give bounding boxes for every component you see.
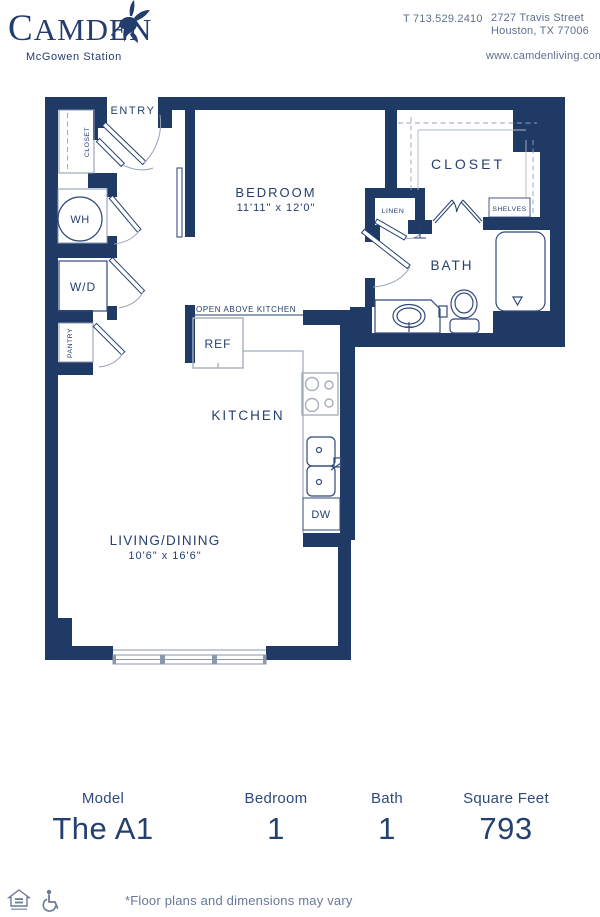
toilet: [450, 290, 479, 333]
pantry-box: [59, 323, 93, 362]
walkin-closet-label: CLOSET: [431, 156, 505, 172]
summary-model: Model The A1: [28, 790, 178, 847]
bath-label: BATH: [430, 258, 473, 273]
kitchen-sink: [307, 437, 341, 496]
living-dining-label: LIVING/DINING: [110, 533, 221, 548]
refrigerator-label: REF: [205, 337, 232, 351]
entry-closet-label: CLOSET: [84, 127, 91, 157]
footer-icons: [7, 889, 62, 912]
pantry-label: PANTRY: [67, 328, 74, 358]
living-window: [113, 650, 266, 664]
model-value: The A1: [28, 811, 178, 847]
kitchen-label: KITCHEN: [211, 408, 284, 423]
sqft-value: 793: [431, 811, 581, 847]
walls: [45, 97, 565, 660]
floorplan-drawing: ENTRY CLOSET WH W/D PANTRY BEDROOM 11'11…: [0, 0, 600, 700]
equal-housing-icon: [7, 889, 31, 912]
disclaimer-text: *Floor plans and dimensions may vary: [125, 893, 353, 908]
sqft-label: Square Feet: [431, 790, 581, 807]
vanity-sink: [375, 300, 447, 333]
living-dims: 10'6" x 16'6": [128, 550, 201, 562]
floorplan-sheet: CAMDEN McGowen Station T 713.529.2410 27…: [0, 0, 600, 917]
water-heater-label: WH: [70, 214, 89, 226]
shelves-label: SHELVES: [492, 206, 526, 213]
counter-line: [243, 351, 303, 533]
dishwasher-label: DW: [311, 509, 330, 521]
bedroom-sliding-door: [177, 168, 182, 237]
doors: [93, 115, 482, 367]
summary-sqft: Square Feet 793: [431, 790, 581, 847]
bathtub: [496, 232, 545, 311]
accessibility-icon: [41, 889, 62, 912]
bedroom-dims: 11'11" x 12'0": [237, 202, 316, 214]
bedroom-label: BEDROOM: [235, 185, 316, 200]
stove: [302, 373, 338, 415]
entry-label: ENTRY: [110, 105, 155, 117]
model-label: Model: [28, 790, 178, 807]
washer-dryer-label: W/D: [70, 280, 96, 294]
open-above-kitchen-label: OPEN ABOVE KITCHEN: [196, 305, 296, 314]
linen-label: LINEN: [382, 208, 405, 215]
